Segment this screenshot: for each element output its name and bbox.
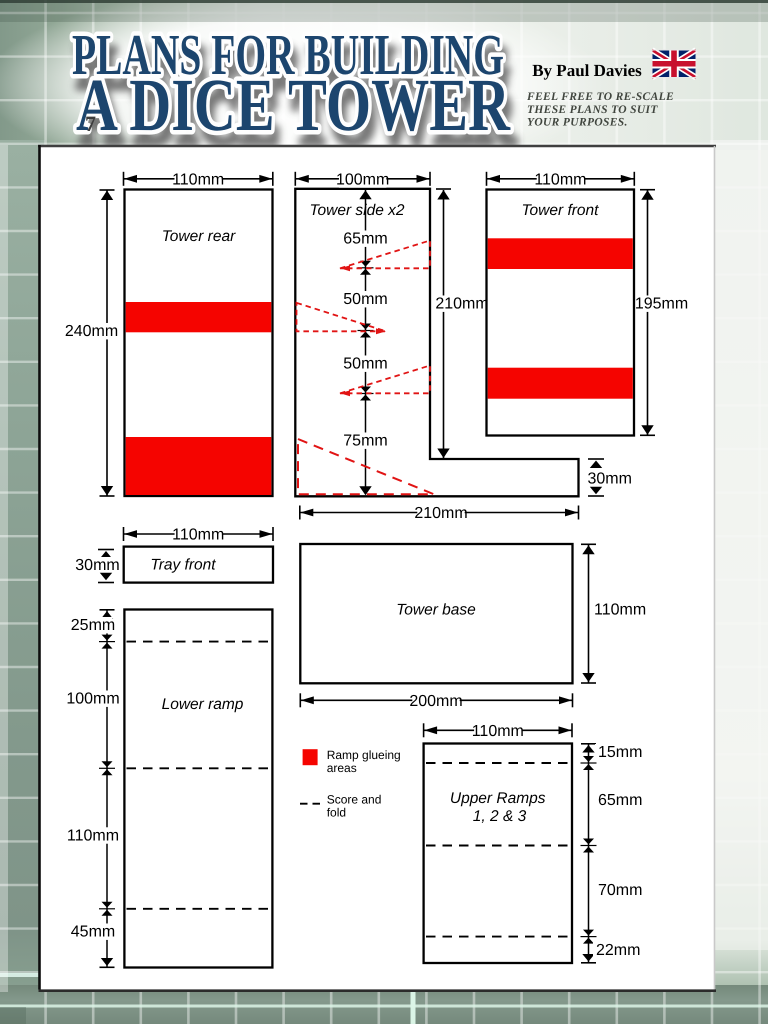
svg-text:75mm: 75mm	[343, 433, 387, 450]
svg-text:Tower rear: Tower rear	[162, 228, 236, 245]
svg-text:100mm: 100mm	[336, 171, 389, 188]
svg-text:110mm: 110mm	[472, 723, 524, 740]
svg-text:Tray front: Tray front	[150, 557, 216, 574]
svg-text:110mm: 110mm	[594, 602, 646, 619]
svg-text:50mm: 50mm	[343, 291, 387, 308]
svg-text:7: 7	[85, 111, 96, 136]
svg-text:A DICE TOWER: A DICE TOWER	[76, 64, 511, 147]
svg-text:By Paul Davies: By Paul Davies	[532, 61, 642, 80]
svg-text:Tower side x2: Tower side x2	[309, 202, 404, 219]
svg-text:FEEL FREE TO RE-SCALE: FEEL FREE TO RE-SCALE	[526, 91, 674, 103]
svg-text:Score and: Score and	[327, 793, 382, 807]
svg-text:50mm: 50mm	[343, 356, 387, 373]
svg-text:Lower ramp: Lower ramp	[162, 696, 244, 713]
svg-text:fold: fold	[327, 806, 346, 820]
svg-text:100mm: 100mm	[66, 691, 119, 708]
svg-text:22mm: 22mm	[596, 942, 640, 959]
svg-text:210mm: 210mm	[435, 296, 488, 313]
svg-text:Upper Ramps: Upper Ramps	[450, 790, 546, 807]
svg-text:110mm: 110mm	[172, 527, 224, 544]
svg-text:THESE PLANS TO SUIT: THESE PLANS TO SUIT	[527, 104, 658, 116]
svg-text:Tower base: Tower base	[396, 602, 476, 619]
svg-text:200mm: 200mm	[409, 693, 462, 710]
svg-text:195mm: 195mm	[635, 296, 688, 313]
svg-text:Tower front: Tower front	[522, 202, 600, 219]
svg-text:210mm: 210mm	[414, 505, 467, 522]
svg-text:65mm: 65mm	[343, 231, 387, 248]
svg-text:Ramp glueing: Ramp glueing	[327, 748, 401, 762]
svg-text:15mm: 15mm	[598, 744, 642, 761]
svg-text:110mm: 110mm	[534, 171, 586, 188]
svg-text:240mm: 240mm	[65, 323, 118, 340]
svg-text:70mm: 70mm	[598, 882, 642, 899]
svg-text:1, 2 & 3: 1, 2 & 3	[473, 808, 527, 825]
svg-text:YOUR PURPOSES.: YOUR PURPOSES.	[527, 117, 628, 129]
svg-text:65mm: 65mm	[598, 792, 642, 809]
svg-text:45mm: 45mm	[71, 924, 115, 941]
svg-text:110mm: 110mm	[67, 827, 119, 844]
svg-text:25mm: 25mm	[71, 617, 115, 634]
svg-text:110mm: 110mm	[172, 171, 224, 188]
svg-text:30mm: 30mm	[75, 557, 119, 574]
svg-text:30mm: 30mm	[588, 471, 632, 488]
svg-text:areas: areas	[327, 761, 357, 775]
